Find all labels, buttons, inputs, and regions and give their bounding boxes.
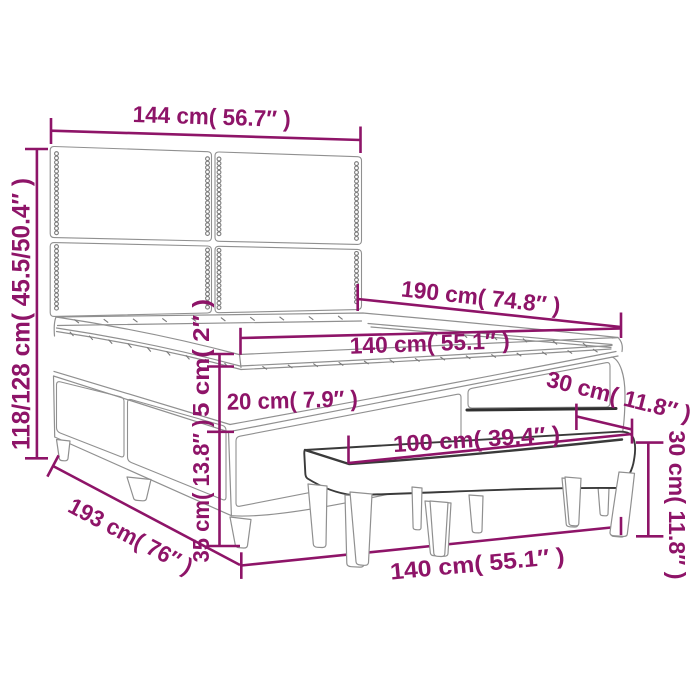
svg-text:30 cm( 11.8″ ): 30 cm( 11.8″ ): [664, 431, 690, 580]
svg-text:144 cm( 56.7″ ): 144 cm( 56.7″ ): [132, 101, 291, 132]
svg-text:118/128 cm( 45.5/50.4″ ): 118/128 cm( 45.5/50.4″ ): [8, 178, 36, 450]
svg-text:20 cm( 7.9″ ): 20 cm( 7.9″ ): [226, 385, 358, 414]
svg-text:5 cm( 2″ ): 5 cm( 2″ ): [188, 299, 214, 417]
svg-text:35 cm( 13.8″ ): 35 cm( 13.8″ ): [188, 420, 214, 563]
